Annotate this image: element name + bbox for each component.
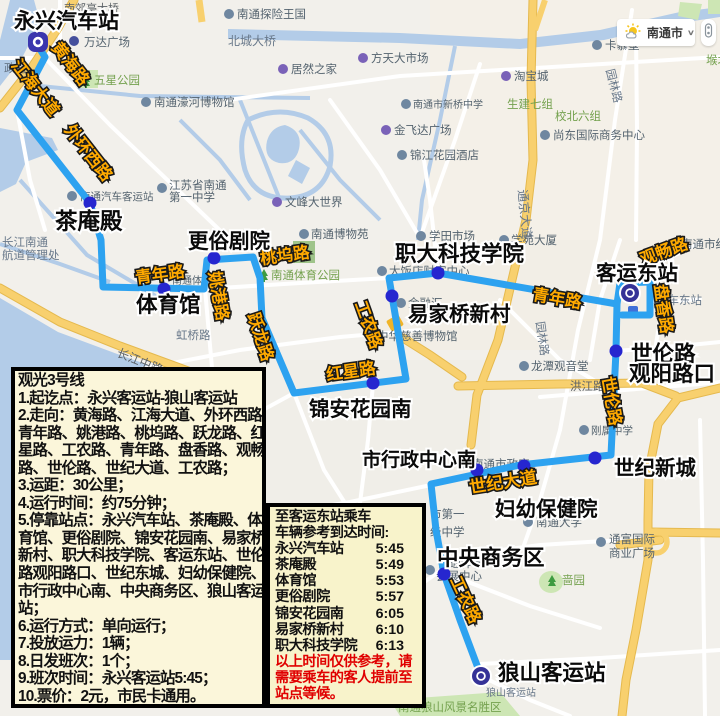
svg-text:永兴汽车站: 永兴汽车站: [13, 9, 119, 33]
svg-text:校北六组: 校北六组: [555, 109, 601, 123]
svg-text:南通探险王国: 南通探险王国: [237, 7, 306, 21]
svg-text:方天大市场: 方天大市场: [371, 51, 429, 65]
svg-text:职大科技学院: 职大科技学院: [395, 241, 525, 266]
svg-text:文峰大世界: 文峰大世界: [285, 195, 343, 209]
svg-text:第一中学: 第一中学: [169, 190, 215, 204]
svg-text:航道管理处: 航道管理处: [2, 248, 60, 262]
svg-text:锦江花园酒店: 锦江花园酒店: [410, 148, 479, 162]
svg-text:淘宝城: 淘宝城: [514, 69, 549, 83]
svg-text:南通市新桥中学: 南通市新桥中学: [413, 98, 483, 111]
svg-text:龙潭观音堂: 龙潭观音堂: [531, 359, 589, 373]
svg-text:万达广场: 万达广场: [84, 35, 130, 49]
svg-text:北城大桥: 北城大桥: [228, 34, 276, 48]
svg-text:更俗剧院: 更俗剧院: [188, 229, 270, 253]
svg-text:江苏省南通: 江苏省南通: [169, 178, 227, 192]
svg-text:南通体育公园: 南通体育公园: [271, 268, 340, 282]
svg-text:居然之家: 居然之家: [291, 62, 337, 76]
svg-text:通富国际: 通富国际: [609, 532, 655, 546]
svg-text:五星公园: 五星公园: [94, 74, 140, 87]
svg-text:世纪新城: 世纪新城: [614, 456, 696, 480]
svg-text:堠北: 堠北: [706, 53, 720, 67]
svg-text:观阳路口: 观阳路口: [629, 361, 715, 386]
svg-text:妇幼保健院: 妇幼保健院: [495, 497, 598, 521]
svg-text:尚东国际商务中心: 尚东国际商务中心: [553, 128, 645, 142]
svg-text:体育馆: 体育馆: [136, 292, 201, 317]
svg-text:中央商务区: 中央商务区: [437, 545, 545, 570]
svg-text:狼山客运站: 狼山客运站: [498, 660, 606, 685]
svg-text:狼山客运站: 狼山客运站: [486, 686, 536, 699]
svg-text:生建七组: 生建七组: [507, 97, 553, 111]
svg-text:啬园: 啬园: [562, 573, 585, 587]
svg-text:南通濠河博物馆: 南通濠河博物馆: [154, 95, 235, 109]
svg-text:南通博物苑: 南通博物苑: [311, 227, 369, 241]
svg-text:虹桥路: 虹桥路: [176, 328, 211, 342]
svg-text:商业广场: 商业广场: [609, 546, 655, 560]
svg-text:学田市场: 学田市场: [429, 229, 475, 243]
svg-text:中华慈善博物馆: 中华慈善博物馆: [377, 329, 458, 343]
svg-text:客运东站: 客运东站: [595, 261, 678, 285]
svg-text:锦安花园南: 锦安花园南: [309, 397, 412, 421]
svg-text:茶庵殿: 茶庵殿: [55, 208, 123, 234]
svg-text:市行政中心南: 市行政中心南: [362, 448, 476, 471]
svg-text:长江南通: 长江南通: [2, 235, 48, 249]
svg-text:金飞达广场: 金飞达广场: [394, 123, 452, 137]
svg-text:易家桥新村: 易家桥新村: [408, 302, 511, 326]
